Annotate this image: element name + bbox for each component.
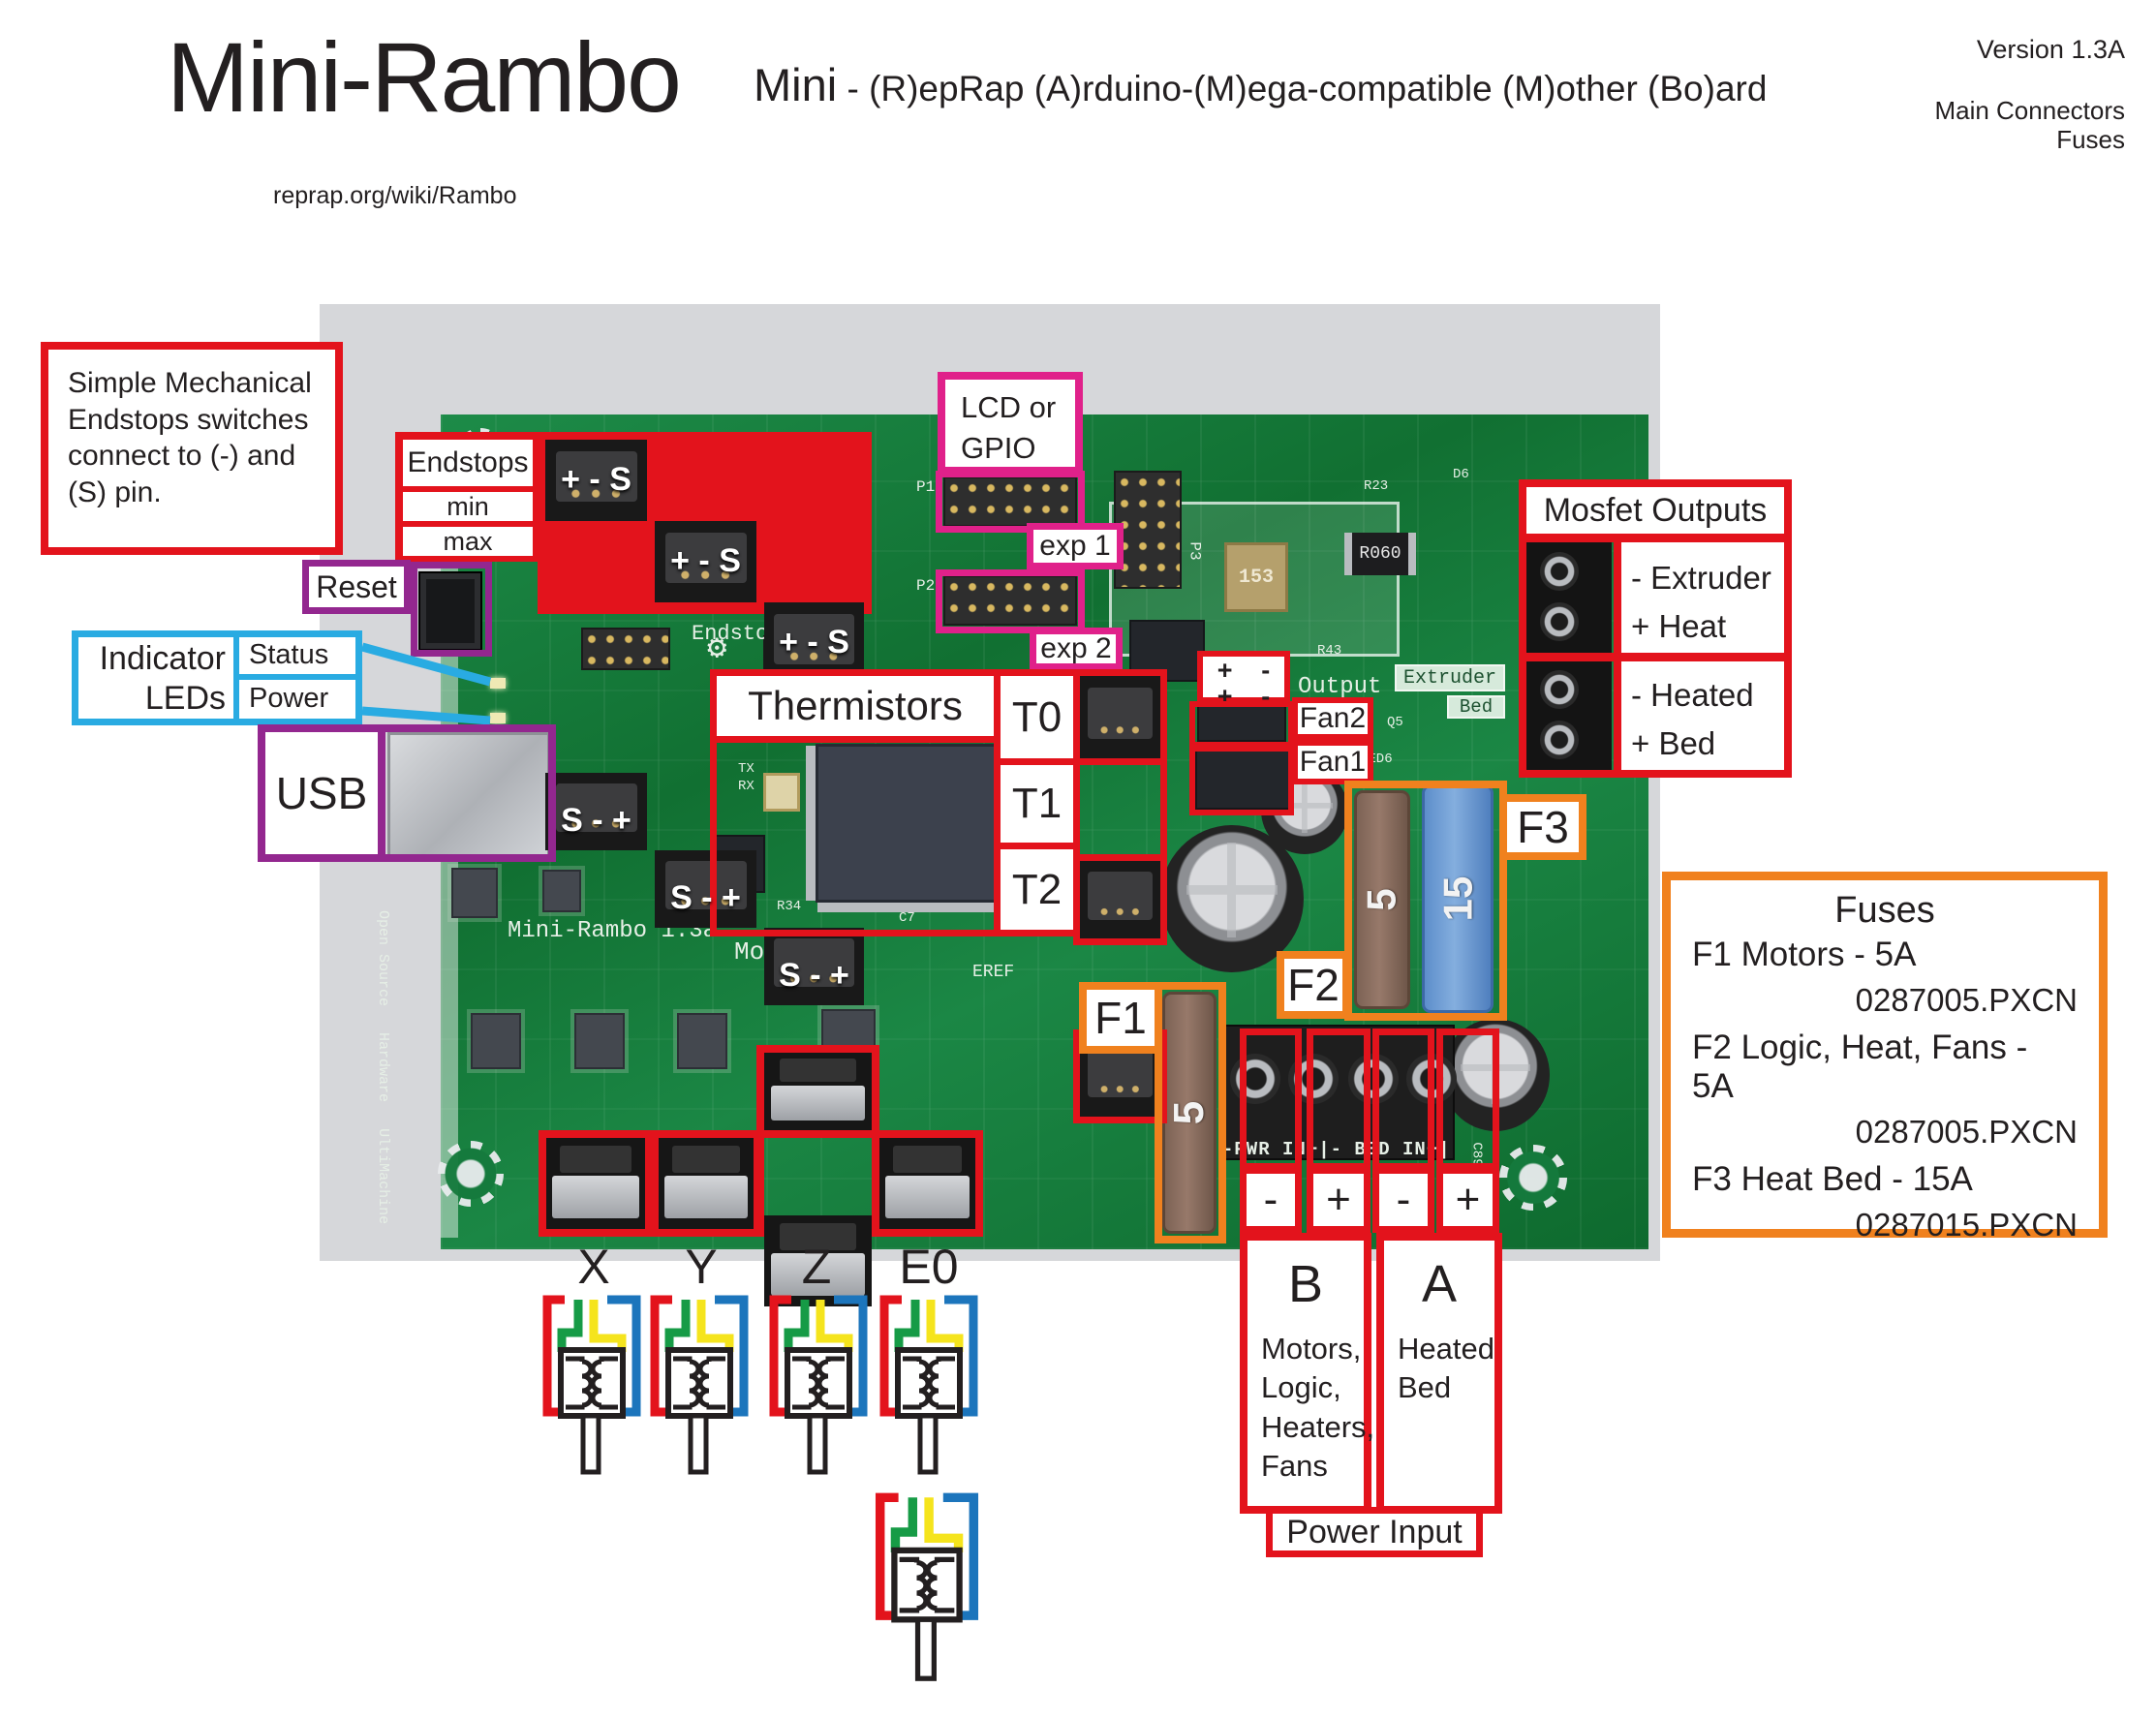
- lcd-line1: LCD or: [961, 387, 1075, 428]
- x-stepper-schematic: [536, 1294, 648, 1488]
- endstop-connector-ymin: + - S: [655, 521, 756, 602]
- endstops-label-group: Endstops min max: [395, 432, 540, 562]
- driver-chip-2: [574, 1013, 625, 1069]
- fan1-label: Fan1: [1292, 740, 1373, 784]
- silk-osh2: Hardware: [375, 1032, 391, 1102]
- exp1-label: exp 1: [1027, 523, 1124, 569]
- indicator-led-group: IndicatorLEDs Status Power: [72, 630, 362, 725]
- terminal-sign-1: -: [1240, 1167, 1302, 1233]
- supply-a-label: A: [1398, 1254, 1494, 1314]
- fuse-legend-item: F2 Logic, Heat, Fans - 5A 0287005.PXCN: [1692, 1028, 2078, 1151]
- mounting-hole-2: [1499, 1145, 1567, 1211]
- e0-stepper-schematic: [873, 1294, 985, 1488]
- fuse-legend-item: F1 Motors - 5A 0287005.PXCN: [1692, 936, 2078, 1019]
- f3-label: F3: [1499, 794, 1586, 860]
- fuse-item-part: 0287015.PXCN: [1692, 1207, 2078, 1243]
- silk-r23: R23: [1364, 478, 1388, 494]
- fan2-label: Fan2: [1292, 697, 1373, 740]
- page-title: Mini-Rambo: [167, 21, 680, 135]
- z2-stepper-schematic: [854, 1491, 1000, 1695]
- silk-bed-text: Bed: [1460, 696, 1493, 718]
- terminal-sign-2: +: [1307, 1167, 1371, 1233]
- fuse-item-name: F3 Heat Bed - 15A: [1692, 1160, 2078, 1199]
- fuse-item-name: F1 Motors - 5A: [1692, 936, 2078, 974]
- terminal-outline-2: [1307, 1028, 1371, 1170]
- silk-osh1: Open Source: [375, 910, 391, 1006]
- corner-line2: Fuses: [1934, 126, 2125, 155]
- fuses-legend: Fuses F1 Motors - 5A 0287005.PXCN F2 Log…: [1662, 872, 2108, 1238]
- endstops-max: max: [403, 527, 533, 556]
- y-stepper-schematic: [643, 1294, 755, 1488]
- fan2-outline: [1189, 701, 1294, 748]
- terminal-outline-4: [1436, 1028, 1499, 1170]
- driver-chip-3: [677, 1013, 727, 1069]
- terminal-sign-3: -: [1372, 1167, 1434, 1233]
- thermistors-title: Thermistors: [710, 669, 1001, 743]
- lcd-line2: GPIO: [961, 428, 1075, 469]
- e0-motor-outline: [872, 1130, 983, 1237]
- indicator-pointer-lines: [360, 637, 498, 730]
- terminal-sign-4: +: [1436, 1167, 1499, 1233]
- t0-connector: [1073, 669, 1167, 765]
- f1-outline: [1155, 982, 1226, 1243]
- x-motor-outline: [539, 1130, 653, 1237]
- status-label: Status: [239, 637, 355, 674]
- p3-header: [1114, 471, 1182, 589]
- terminal-outline-1: [1240, 1028, 1302, 1170]
- corner-legend: Main Connectors Fuses: [1934, 97, 2125, 155]
- icsp-header: [581, 628, 670, 670]
- z-motor-label: Z: [778, 1242, 855, 1292]
- silk-oshw: Open Source Hardware UltiMachine: [375, 910, 391, 1224]
- silk-osh3: UltiMachine: [375, 1128, 391, 1224]
- silk-eref: EREF: [972, 963, 1014, 982]
- endstop-connector-xmin: + - S: [545, 440, 647, 521]
- power-input-label: Power Input: [1266, 1507, 1483, 1557]
- supply-b-label: B: [1261, 1254, 1364, 1314]
- silk-p3: P3: [1186, 541, 1204, 560]
- mosfet-title: Mosfet Outputs: [1519, 479, 1792, 541]
- usb-label: USB: [258, 724, 385, 862]
- aux-chip-1: [451, 868, 498, 918]
- mosfet-row1-label: - Extruder+ Heat: [1614, 535, 1792, 660]
- mosfet-row2-label: - Heated+ Bed: [1614, 654, 1792, 778]
- exp2-outline: [936, 569, 1085, 633]
- silk-r43: R43: [1317, 643, 1341, 659]
- fuse-legend-item: F3 Heat Bed - 15A 0287015.PXCN: [1692, 1160, 2078, 1243]
- z-motor-outline: [756, 1045, 879, 1237]
- page-subtitle: Mini - (R)epRap (A)rduino-(M)ega-compati…: [754, 58, 1767, 111]
- r060-label: R060: [1359, 544, 1401, 564]
- oshw-gear-icon: ⚙: [707, 628, 726, 668]
- power-label: Power: [239, 680, 355, 719]
- t1-connector: [1073, 854, 1167, 945]
- supply-b-box: B Motors, Logic, Heaters, Fans: [1240, 1233, 1371, 1514]
- supply-b-desc: Motors, Logic, Heaters, Fans: [1261, 1330, 1362, 1486]
- silk-bed: Bed: [1447, 695, 1505, 719]
- silk-extruder-text: Extruder: [1403, 667, 1496, 690]
- diagram-page: Mini-Rambo reprap.org/wiki/Rambo Mini - …: [0, 0, 2156, 1719]
- inductor-value: 153: [1239, 567, 1274, 589]
- silk-p1: P1: [916, 478, 935, 496]
- endstops-connector-grid: + - S + - S + - S S - + S - + S - +: [538, 432, 872, 614]
- endstop-connector-xmax: S - +: [545, 773, 647, 850]
- mosfet-row2-outline: [1519, 654, 1621, 778]
- version-label: Version 1.3A: [1977, 35, 2125, 65]
- fuses-legend-title: Fuses: [1692, 890, 2078, 932]
- driver-chip-1: [471, 1013, 521, 1069]
- fan1-outline: [1189, 746, 1294, 815]
- mosfet-row1-outline: [1519, 535, 1621, 660]
- aux-chip-2: [542, 870, 581, 912]
- endstop-note-text: Simple Mechanical Endstops switches conn…: [68, 367, 312, 508]
- fuse-item-part: 0287005.PXCN: [1692, 1114, 2078, 1151]
- silk-q5: Q5: [1387, 715, 1403, 730]
- supply-a-desc: Heated Bed: [1398, 1330, 1494, 1408]
- wiki-url: reprap.org/wiki/Rambo: [273, 182, 517, 210]
- corner-line1: Main Connectors: [1934, 97, 2125, 126]
- f2-label: F2: [1277, 951, 1350, 1019]
- t0-label: T0: [994, 669, 1080, 765]
- endstop-note-box: Simple Mechanical Endstops switches conn…: [41, 342, 343, 555]
- endstop-connector-zmax: S - +: [764, 928, 864, 1005]
- t1-label: T1: [994, 758, 1080, 849]
- subtitle-lead: Mini: [754, 59, 837, 110]
- y-motor-label: Y: [662, 1242, 740, 1292]
- f2-f3-outline: [1344, 781, 1507, 1021]
- mounting-hole-1: [438, 1141, 504, 1207]
- r060-resistor: R060: [1344, 533, 1416, 575]
- endstops-title: Endstops: [403, 440, 533, 486]
- t2-label: T2: [994, 843, 1080, 936]
- z-stepper-schematic: [762, 1294, 875, 1488]
- indicator-label: IndicatorLEDs: [78, 637, 233, 719]
- endstops-min: min: [403, 492, 533, 521]
- reset-label: Reset: [302, 560, 411, 614]
- silk-extruder: Extruder: [1395, 664, 1505, 691]
- fan-polarity-box: +- +-: [1197, 651, 1290, 703]
- fuse-item-name: F2 Logic, Heat, Fans - 5A: [1692, 1028, 2078, 1106]
- e0-motor-label: E0: [890, 1242, 968, 1292]
- fuse-item-part: 0287005.PXCN: [1692, 982, 2078, 1019]
- exp2-label: exp 2: [1030, 628, 1123, 670]
- f1-label: F1: [1079, 982, 1162, 1054]
- subtitle-rest: - (R)epRap (A)rduino-(M)ega-compatible (…: [837, 69, 1767, 108]
- silk-d6: D6: [1453, 467, 1469, 482]
- y-motor-outline: [651, 1130, 761, 1237]
- supply-a-box: A Heated Bed: [1376, 1233, 1502, 1514]
- silk-p2: P2: [916, 577, 935, 595]
- lcd-gpio-label: LCD or GPIO: [938, 372, 1083, 475]
- inductor: 153: [1224, 542, 1288, 612]
- terminal-outline-3: [1372, 1028, 1434, 1170]
- x-motor-label: X: [555, 1242, 632, 1292]
- silk-output: Output: [1298, 674, 1381, 700]
